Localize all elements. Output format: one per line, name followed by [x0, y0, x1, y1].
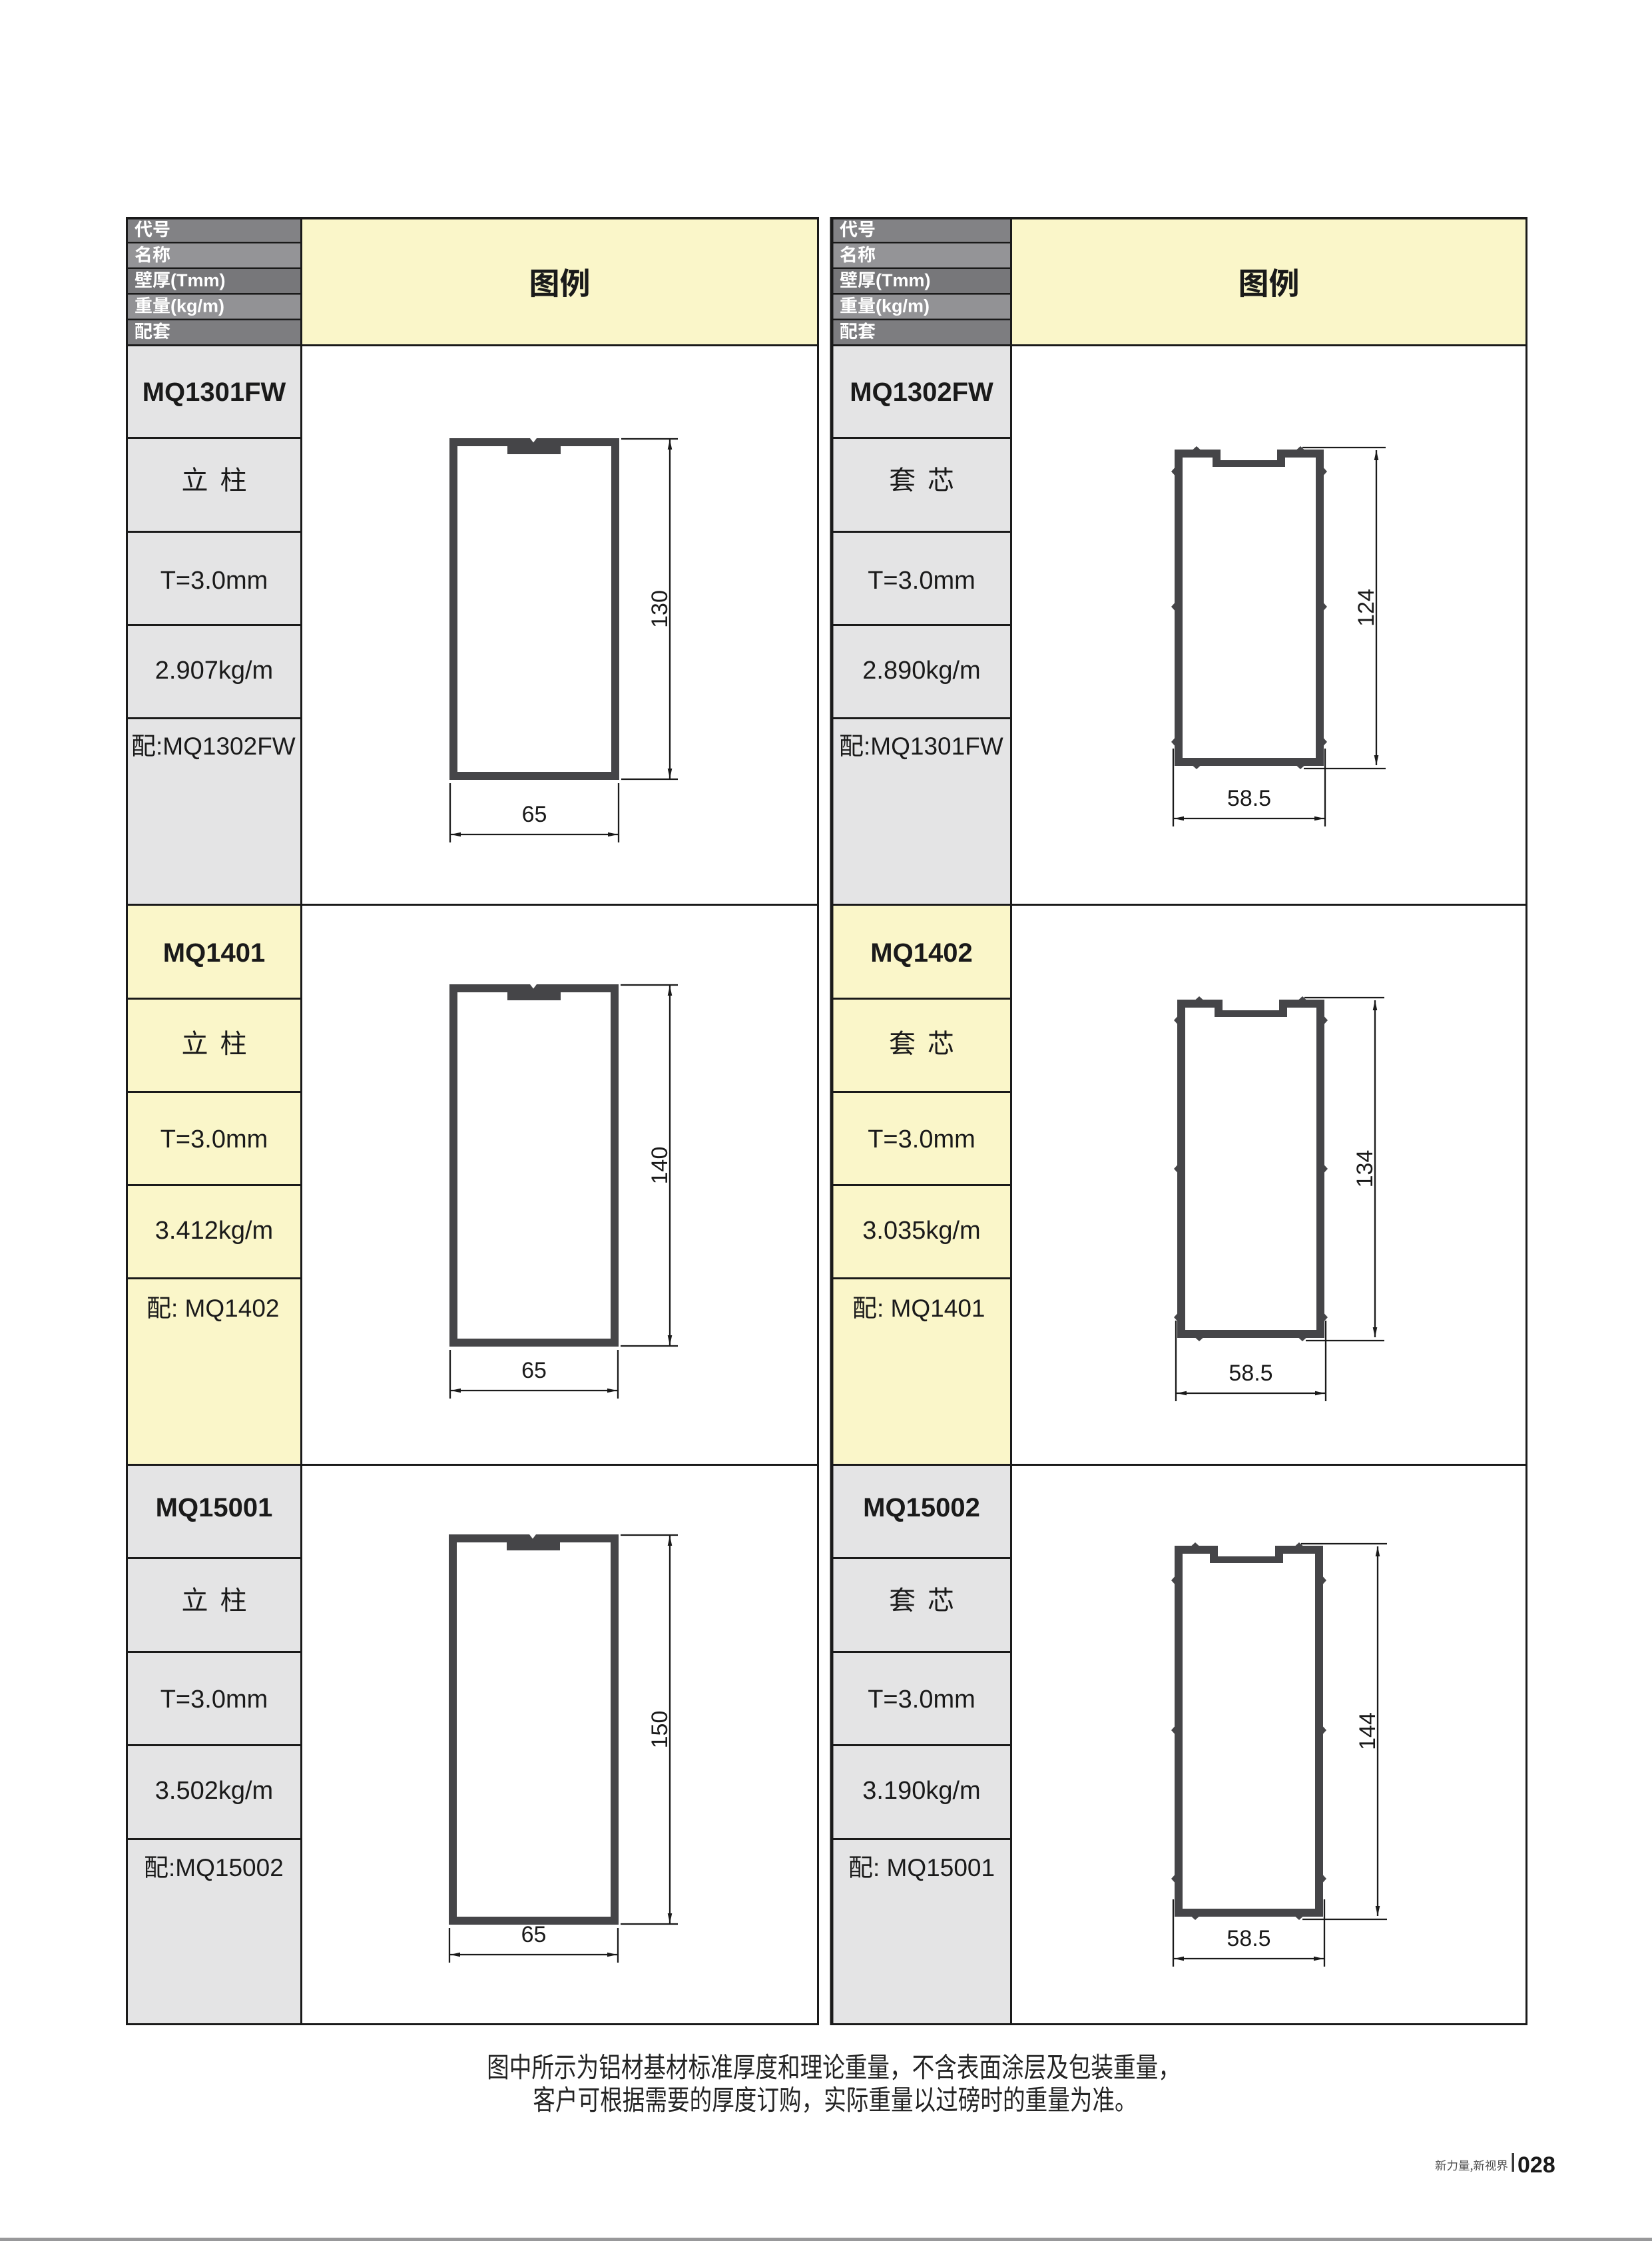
- svg-text::MQ1302FW: :MQ1302FW: [156, 733, 296, 760]
- svg-text:MQ15001: MQ15001: [156, 1493, 273, 1522]
- svg-text::MQ15002: :MQ15002: [168, 1854, 284, 1881]
- svg-text:130: 130: [647, 590, 673, 628]
- svg-text:3.035kg/m: 3.035kg/m: [862, 1217, 980, 1245]
- svg-text::MQ1301FW: :MQ1301FW: [864, 733, 1003, 760]
- svg-text:028: 028: [1517, 2152, 1555, 2178]
- svg-text:3.502kg/m: 3.502kg/m: [155, 1777, 273, 1805]
- svg-text:T=3.0mm: T=3.0mm: [868, 1125, 975, 1153]
- svg-text:140: 140: [647, 1147, 673, 1185]
- svg-text:134: 134: [1352, 1150, 1378, 1188]
- svg-text:T=3.0mm: T=3.0mm: [160, 567, 268, 595]
- svg-text:MQ1402: MQ1402: [870, 938, 972, 968]
- svg-text:65: 65: [521, 1922, 547, 1947]
- svg-text:58.5: 58.5: [1229, 1361, 1272, 1386]
- svg-text:65: 65: [521, 1358, 547, 1383]
- svg-text:3.190kg/m: 3.190kg/m: [862, 1777, 980, 1805]
- svg-text:65: 65: [522, 802, 547, 827]
- svg-text:124: 124: [1354, 589, 1379, 627]
- svg-text:2.890kg/m: 2.890kg/m: [862, 657, 980, 685]
- svg-text:MQ1401: MQ1401: [163, 938, 265, 968]
- svg-text:(kg/m): (kg/m): [170, 296, 224, 316]
- svg-text:: MQ1401: : MQ1401: [877, 1295, 985, 1322]
- svg-text:: MQ15001: : MQ15001: [873, 1854, 995, 1881]
- svg-text:(Tmm): (Tmm): [170, 270, 226, 290]
- svg-text:T=3.0mm: T=3.0mm: [868, 567, 975, 595]
- svg-text:MQ1301FW: MQ1301FW: [142, 378, 286, 407]
- svg-text:3.412kg/m: 3.412kg/m: [155, 1217, 273, 1245]
- svg-text:58.5: 58.5: [1227, 786, 1271, 811]
- svg-text:MQ15002: MQ15002: [863, 1493, 980, 1522]
- svg-text:58.5: 58.5: [1227, 1926, 1270, 1951]
- svg-text:144: 144: [1355, 1712, 1380, 1750]
- svg-text:T=3.0mm: T=3.0mm: [160, 1686, 268, 1714]
- svg-text:: MQ1402: : MQ1402: [171, 1295, 279, 1322]
- svg-text:MQ1302FW: MQ1302FW: [850, 378, 993, 407]
- svg-text:2.907kg/m: 2.907kg/m: [155, 657, 273, 685]
- svg-text:(Tmm): (Tmm): [876, 270, 931, 290]
- svg-text:150: 150: [647, 1711, 673, 1749]
- svg-text:T=3.0mm: T=3.0mm: [160, 1125, 268, 1153]
- svg-text:T=3.0mm: T=3.0mm: [868, 1686, 975, 1714]
- svg-text:(kg/m): (kg/m): [876, 296, 930, 316]
